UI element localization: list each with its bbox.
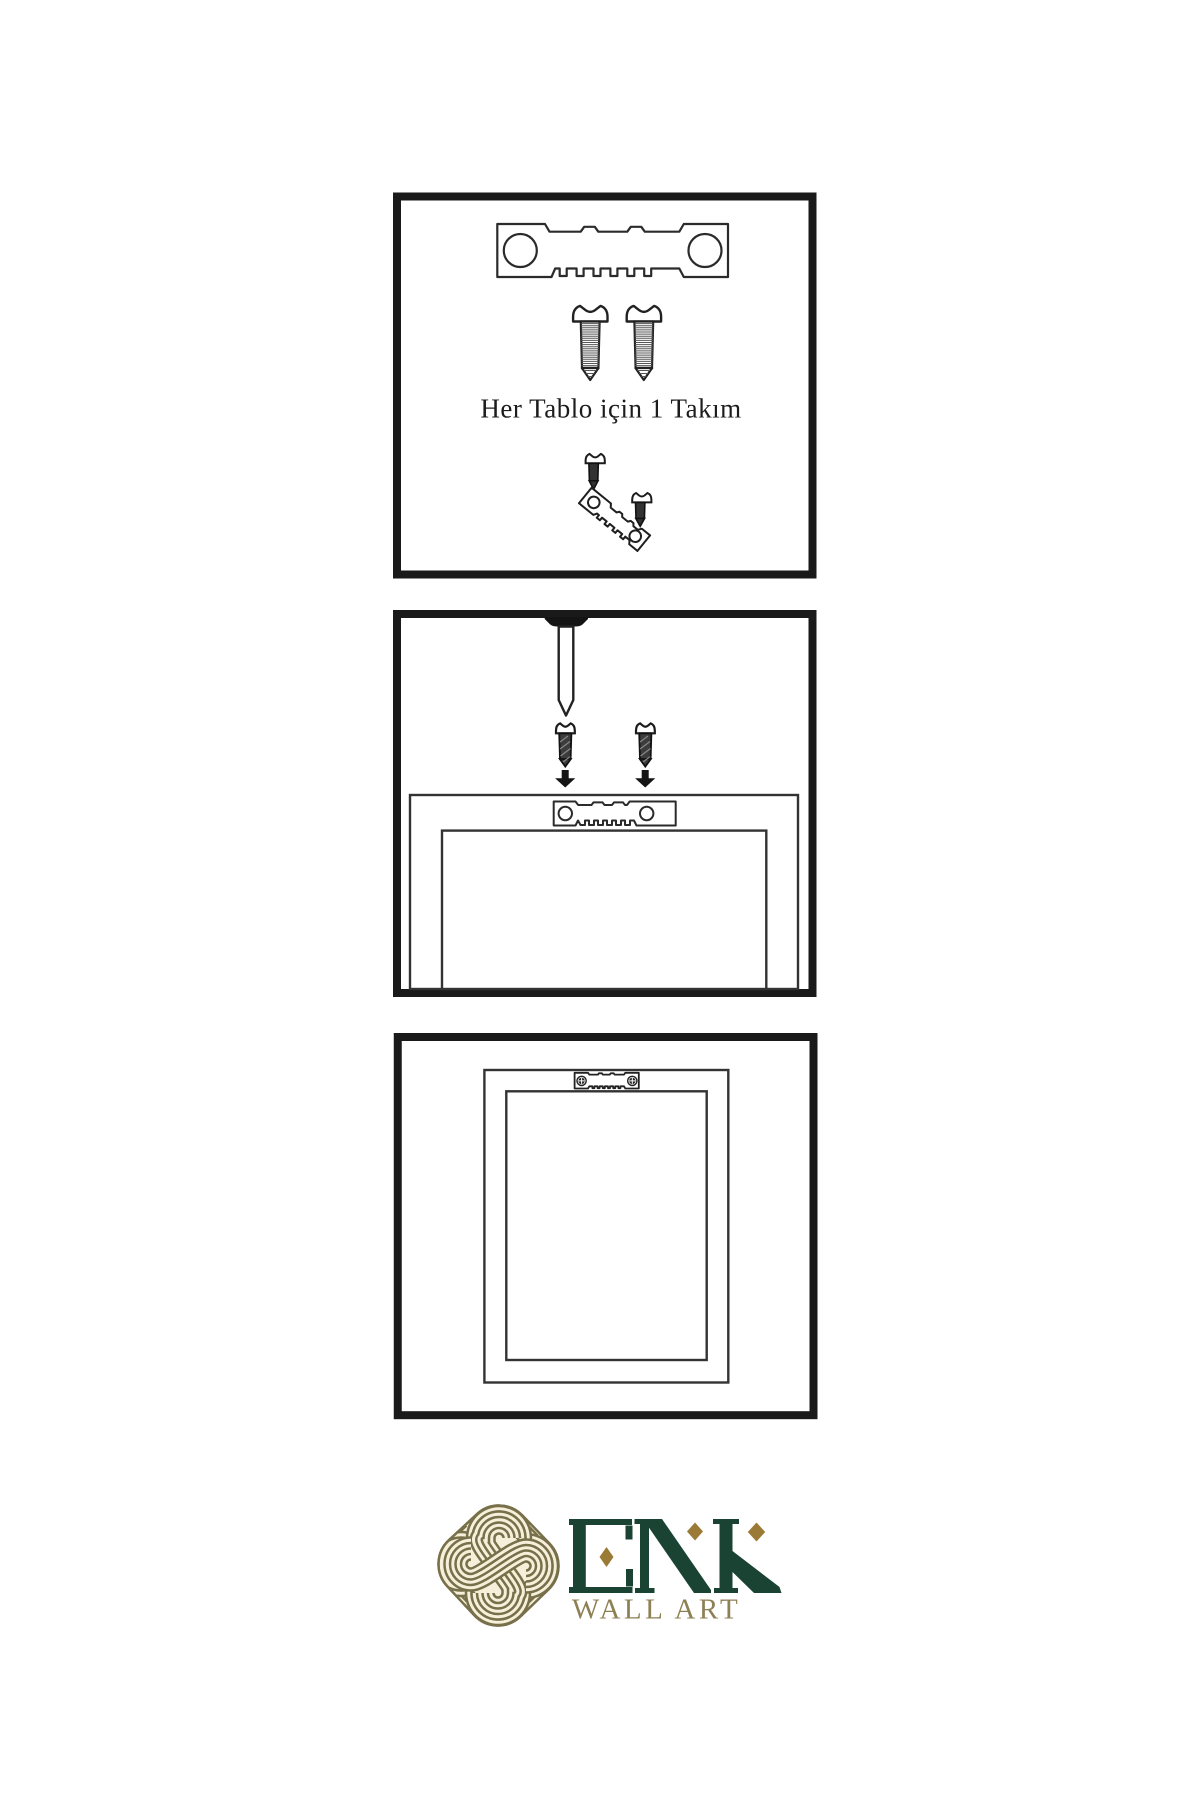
svg-text:Her Tablo için 1 Takım: Her Tablo için 1 Takım xyxy=(480,394,741,424)
svg-text:WALL ART: WALL ART xyxy=(572,1594,741,1626)
